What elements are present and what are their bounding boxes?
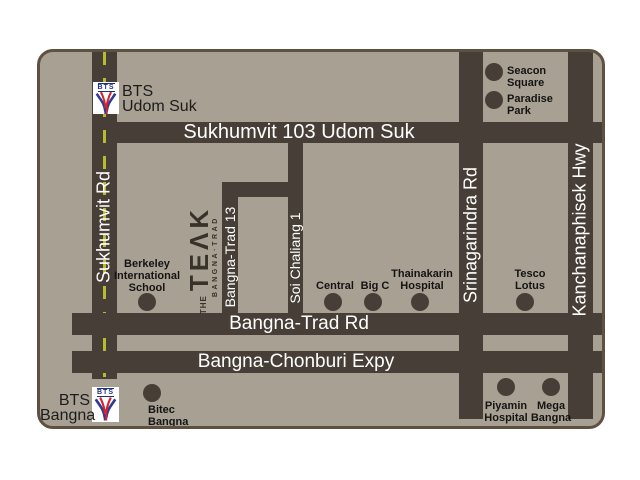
landmark-dot-bitec-bangna (143, 384, 161, 402)
road-label-sukhumvit: Sukhumvit Rd (94, 171, 115, 283)
landmark-label-bitec-bangna: Bitec Bangna (148, 404, 188, 428)
landmark-dot-seacon-square (485, 63, 503, 81)
page: { "colors": { "page_bg": "#ffffff", "car… (0, 0, 640, 480)
label-line: Berkeley (114, 258, 180, 270)
label-line: Seacon (507, 65, 546, 77)
label-line: Piyamin (484, 400, 527, 412)
landmark-label-paradise-park: Paradise Park (507, 93, 553, 117)
bts-wordmark: BTS (98, 83, 115, 92)
landmark-dot-big-c (364, 293, 382, 311)
landmark-dot-berkeley-school (138, 293, 156, 311)
label-line: School (114, 282, 180, 294)
label-line: Hospital (391, 280, 453, 292)
label-line: International (114, 270, 180, 282)
road-label-soi-chaliang: Soi Chaliang 1 (287, 212, 303, 303)
road-label-srinagarindra: Srinagarindra Rd (461, 167, 482, 303)
bts-udom-suk-line1: BTS (122, 84, 197, 99)
landmark-label-berkeley-school: Berkeley International School (114, 258, 180, 294)
landmark-dot-central (324, 293, 342, 311)
teak-logo-name: TEΛK (187, 206, 211, 291)
label-line: Hospital (484, 412, 527, 424)
landmark-label-central: Central (316, 280, 354, 292)
label-line: Big C (361, 280, 390, 292)
bts-symbol-icon (95, 92, 117, 114)
label-line: Lotus (515, 280, 546, 292)
landmark-dot-paradise-park (485, 91, 503, 109)
bts-bangna-logo: BTS (92, 387, 119, 422)
road-label-kanchanaphisek: Kanchanaphisek Hwy (570, 143, 591, 316)
bts-bangna-label: BTS Bangna (40, 393, 90, 423)
label-line: Thainakarin (391, 268, 453, 280)
bts-bangna-line2: Bangna (40, 408, 90, 423)
teak-logo-the: THE (199, 295, 208, 314)
landmark-label-piyamin-hospital: Piyamin Hospital (484, 400, 527, 424)
bts-bangna-line1: BTS (40, 393, 90, 408)
the-teak-logo: THE TEΛK BANGNA·TRAD (187, 206, 219, 314)
bts-udom-suk-label: BTS Udom Suk (122, 84, 197, 114)
landmark-label-seacon-square: Seacon Square (507, 65, 546, 89)
bts-udom-suk-logo: BTS (93, 82, 119, 114)
label-line: Tesco (515, 268, 546, 280)
road-connector (222, 182, 303, 197)
label-line: Bangna (148, 416, 188, 428)
landmark-dot-tesco-lotus (516, 293, 534, 311)
road-label-sukhumvit-103: Sukhumvit 103 Udom Suk (183, 122, 414, 143)
landmark-label-big-c: Big C (361, 280, 390, 292)
location-map: Sukhumvit 103 Udom Suk Bangna-Trad Rd Ba… (37, 49, 605, 429)
label-line: Mega (531, 400, 571, 412)
landmark-label-tesco-lotus: Tesco Lotus (515, 268, 546, 292)
teak-logo-subtitle: BANGNA·TRAD (212, 206, 219, 297)
landmark-dot-mega-bangna (542, 378, 560, 396)
label-line: Paradise (507, 93, 553, 105)
label-line: Central (316, 280, 354, 292)
road-label-bangna-trad-13: Bangna-Trad 13 (222, 207, 238, 308)
landmark-label-thainakarin-hospital: Thainakarin Hospital (391, 268, 453, 292)
landmark-dot-piyamin-hospital (497, 378, 515, 396)
landmark-label-mega-bangna: Mega Bangna (531, 400, 571, 424)
road-label-expressway: Bangna-Chonburi Expy (198, 351, 394, 373)
label-line: Park (507, 105, 553, 117)
label-line: Bitec (148, 404, 188, 416)
bts-udom-suk-line2: Udom Suk (122, 99, 197, 114)
label-line: Bangna (531, 412, 571, 424)
bts-wordmark: BTS (97, 388, 114, 397)
road-label-bangna-trad: Bangna-Trad Rd (229, 313, 369, 335)
bts-symbol-icon (94, 397, 117, 421)
landmark-dot-thainakarin-hospital (411, 293, 429, 311)
label-line: Square (507, 77, 546, 89)
